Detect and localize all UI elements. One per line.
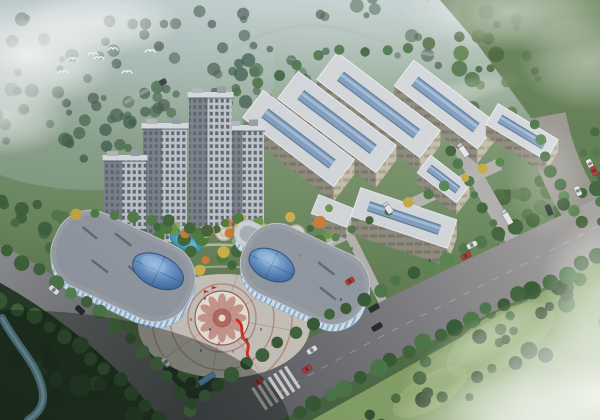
mist-overlay [0, 0, 600, 420]
scene-canvas [0, 0, 600, 420]
mist [505, 120, 585, 240]
aerial-masterplan-render [0, 0, 600, 420]
